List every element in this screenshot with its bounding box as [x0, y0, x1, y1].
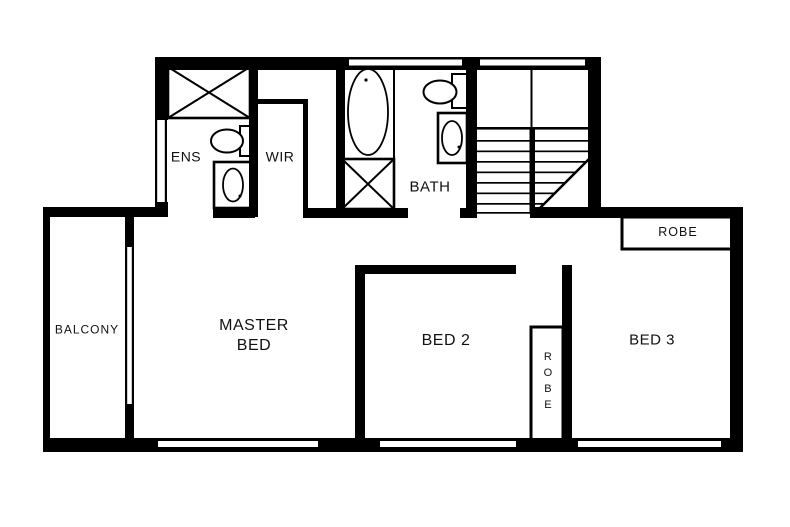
- wall-ens-bottom: [213, 208, 255, 218]
- wall-bath-stairs: [466, 70, 477, 218]
- window-ens-side: [155, 120, 167, 202]
- window-master-bottom: [158, 441, 318, 447]
- basin-icon: [214, 162, 253, 208]
- bed3-label: BED 3: [629, 332, 675, 351]
- wall-ens-wir-divider: [249, 63, 258, 217]
- toilet-icon: [211, 126, 251, 156]
- window-bath-top: [349, 60, 462, 66]
- floor-plan-drawing: [0, 0, 790, 527]
- wall-bath-door-stub: [460, 208, 477, 218]
- stair-landing-divider: [531, 70, 533, 128]
- master-bed-label: MASTER BED: [219, 316, 289, 356]
- window-stairs-top: [480, 60, 585, 66]
- wall-bed2-left: [355, 265, 365, 452]
- bed3-robe-label: ROBE: [658, 225, 697, 241]
- balcony-label: BALCONY: [55, 323, 119, 338]
- ens-label: ENS: [171, 148, 201, 166]
- wall-ens-left-upper: [155, 57, 168, 120]
- stair-treads-left: [477, 140, 531, 214]
- bed2-robe-label: ROBE: [540, 351, 554, 415]
- stair-centre-stringer: [530, 127, 536, 214]
- wall-wir-shelf-top: [255, 99, 308, 104]
- wall-bed3-top: [530, 207, 743, 218]
- wall-balcony-partition-lower: [125, 404, 134, 438]
- wall-bed2-top: [355, 265, 516, 274]
- shower-icon: [168, 67, 250, 118]
- ens-fixtures: [168, 67, 253, 208]
- wall-wir-bath-bottom: [303, 208, 408, 218]
- toilet-icon: [424, 74, 468, 108]
- wall-balcony-partition-upper: [125, 217, 134, 247]
- wall-wir-shelf-side: [303, 99, 308, 213]
- wall-balcony-left: [43, 207, 50, 452]
- staircase-icon: [477, 70, 589, 214]
- bed2-label: BED 2: [422, 331, 471, 351]
- robe-cabinets: [531, 217, 733, 440]
- window-bed3-bottom: [578, 441, 721, 447]
- floor-plan: BALCONY MASTER BED ENS WIR BATH BED 2 BE…: [0, 0, 790, 527]
- bathtub-icon: [342, 64, 394, 159]
- window-bed2-bottom: [380, 441, 516, 447]
- wall-stairs-right: [588, 57, 601, 218]
- sliding-door-icon: [125, 247, 134, 404]
- master-bed-label-line2: BED: [219, 336, 289, 356]
- wir-label: WIR: [266, 148, 295, 166]
- wall-bed2-bed3-divider: [562, 265, 572, 452]
- master-bed-label-line1: MASTER: [219, 316, 289, 336]
- basin-icon: [438, 113, 467, 163]
- wall-right-outer: [730, 207, 743, 452]
- wall-bath-left: [336, 70, 345, 218]
- wall-balcony-top: [43, 207, 157, 217]
- bath-label: BATH: [410, 179, 451, 198]
- shower-icon: [342, 159, 394, 209]
